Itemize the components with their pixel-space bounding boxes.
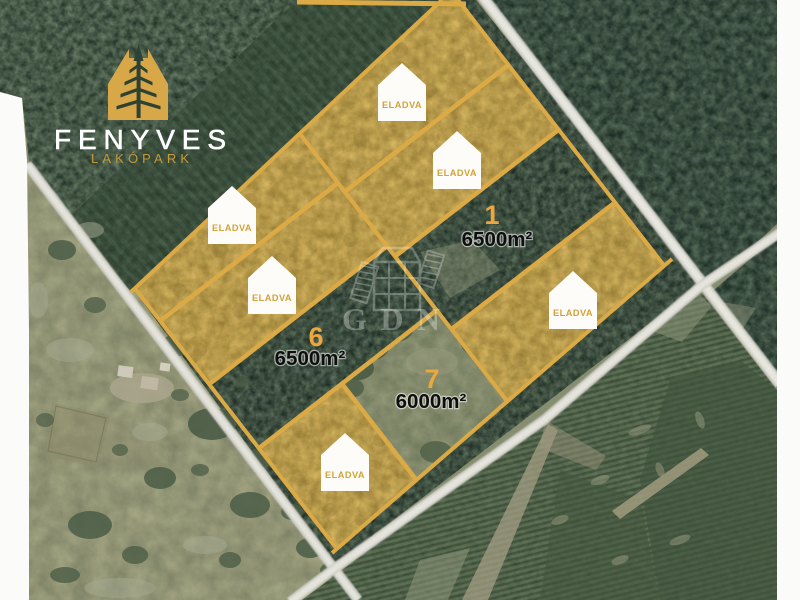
svg-text:ELADVA: ELADVA xyxy=(252,293,292,303)
svg-text:6000m²: 6000m² xyxy=(396,390,467,413)
svg-text:ELADVA: ELADVA xyxy=(437,168,477,178)
svg-text:ELADVA: ELADVA xyxy=(325,470,365,480)
svg-text:ELADVA: ELADVA xyxy=(382,100,422,110)
svg-text:ELADVA: ELADVA xyxy=(553,308,593,318)
svg-text:FENYVES: FENYVES xyxy=(54,124,226,155)
svg-text:ELADVA: ELADVA xyxy=(212,223,252,233)
svg-text:6500m²: 6500m² xyxy=(462,228,533,251)
svg-text:6500m²: 6500m² xyxy=(275,347,346,370)
svg-text:1: 1 xyxy=(484,200,499,230)
svg-text:GDN: GDN xyxy=(342,301,454,337)
